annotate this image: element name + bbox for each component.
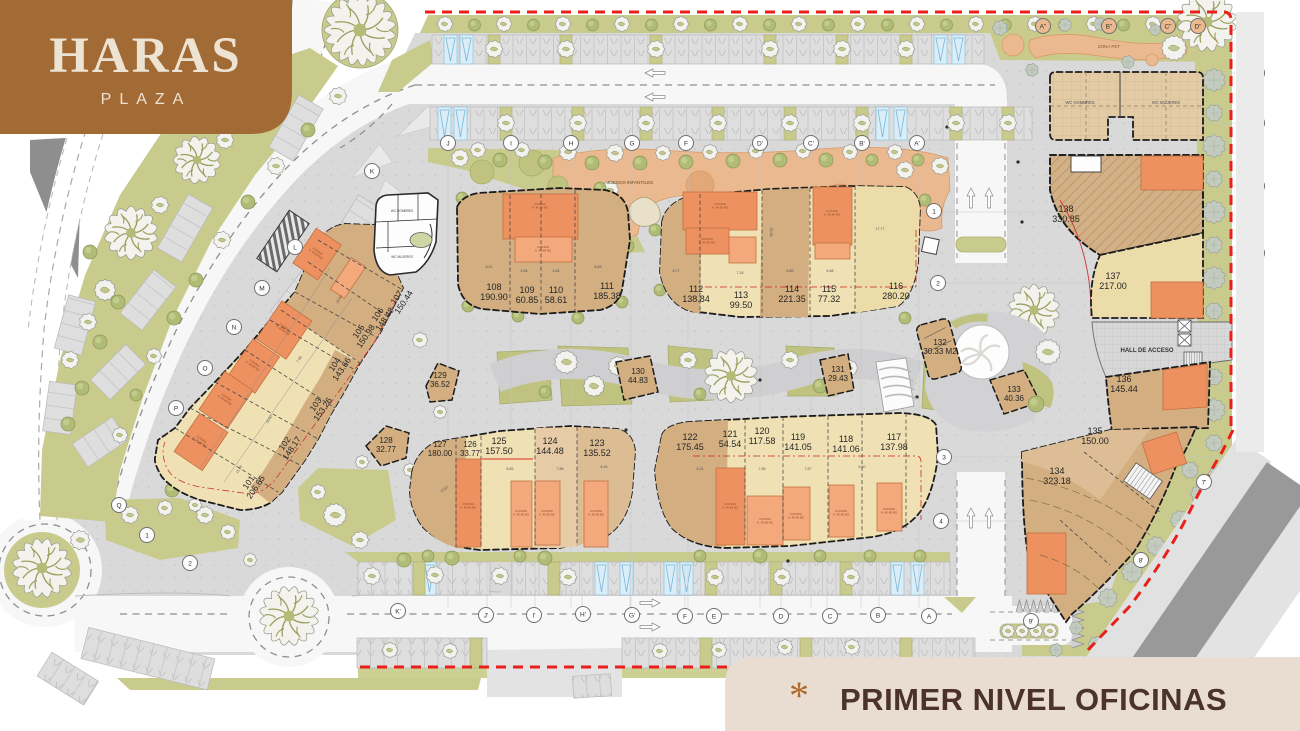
svg-text:7': 7' bbox=[1202, 479, 1207, 486]
svg-text:PLAZA: PLAZA bbox=[101, 91, 192, 108]
svg-text:B': B' bbox=[859, 140, 865, 147]
svg-text:HARAS: HARAS bbox=[49, 28, 243, 84]
svg-text:WC MUJERES: WC MUJERES bbox=[391, 255, 412, 259]
svg-text:WC HOMBRES: WC HOMBRES bbox=[1065, 100, 1095, 105]
svg-text:7.65: 7.65 bbox=[759, 467, 766, 471]
svg-text:2: 2 bbox=[936, 280, 940, 287]
svg-text:E: E bbox=[712, 613, 717, 620]
svg-text:8.86: 8.86 bbox=[787, 269, 794, 273]
svg-text:JUEGOS INFANTILES: JUEGOS INFANTILES bbox=[607, 180, 653, 185]
svg-text:ZONA PET: ZONA PET bbox=[1098, 44, 1121, 49]
svg-text:C: C bbox=[828, 613, 833, 620]
svg-text:C': C' bbox=[808, 140, 814, 147]
svg-text:K': K' bbox=[395, 608, 401, 615]
svg-text:B: B bbox=[876, 612, 880, 619]
svg-text:HALL DE ACCESO: HALL DE ACCESO bbox=[1120, 348, 1173, 354]
svg-text:PRIMER NIVEL OFICINAS: PRIMER NIVEL OFICINAS bbox=[840, 682, 1227, 717]
svg-text:17.77: 17.77 bbox=[876, 227, 885, 231]
svg-text:D": D" bbox=[1194, 23, 1202, 30]
svg-text:4: 4 bbox=[939, 518, 943, 525]
svg-text:2: 2 bbox=[188, 560, 192, 567]
svg-text:N: N bbox=[232, 324, 237, 331]
svg-text:7.87: 7.87 bbox=[805, 467, 812, 471]
svg-text:D: D bbox=[779, 613, 784, 620]
svg-text:25.68: 25.68 bbox=[769, 228, 773, 237]
svg-text:K: K bbox=[370, 168, 375, 175]
svg-text:8.65: 8.65 bbox=[507, 467, 514, 471]
svg-text:8.77: 8.77 bbox=[673, 269, 680, 273]
svg-text:A': A' bbox=[914, 140, 920, 147]
svg-text:8.46: 8.46 bbox=[601, 465, 608, 469]
svg-text:8.40: 8.40 bbox=[859, 465, 866, 469]
svg-text:G: G bbox=[629, 140, 634, 147]
svg-text:3: 3 bbox=[942, 454, 946, 461]
svg-text:*: * bbox=[789, 673, 809, 718]
svg-text:7.18: 7.18 bbox=[737, 271, 744, 275]
svg-text:8': 8' bbox=[1139, 557, 1144, 564]
svg-text:8.31: 8.31 bbox=[697, 467, 704, 471]
svg-text:J': J' bbox=[484, 612, 489, 619]
svg-text:4.88: 4.88 bbox=[521, 269, 528, 273]
svg-text:I': I' bbox=[532, 612, 535, 619]
svg-text:P: P bbox=[174, 405, 178, 412]
svg-text:B": B" bbox=[1106, 23, 1113, 30]
svg-text:1: 1 bbox=[932, 208, 936, 215]
svg-text:WC HOMBRES: WC HOMBRES bbox=[391, 209, 413, 213]
svg-text:WC MUJERES: WC MUJERES bbox=[1152, 100, 1180, 105]
svg-text:4.84: 4.84 bbox=[553, 269, 560, 273]
svg-text:8.46: 8.46 bbox=[595, 265, 602, 269]
svg-text:A: A bbox=[927, 613, 932, 620]
svg-text:M: M bbox=[259, 285, 264, 292]
svg-text:H: H bbox=[569, 140, 574, 147]
svg-text:9': 9' bbox=[1029, 618, 1034, 625]
svg-text:H': H' bbox=[580, 611, 586, 618]
svg-text:F: F bbox=[684, 140, 688, 147]
svg-text:J: J bbox=[446, 140, 449, 147]
svg-text:6.68: 6.68 bbox=[827, 269, 834, 273]
svg-text:8.01: 8.01 bbox=[486, 265, 493, 269]
svg-text:O: O bbox=[202, 365, 207, 372]
svg-text:A": A" bbox=[1040, 23, 1047, 30]
svg-text:7.86: 7.86 bbox=[557, 467, 564, 471]
svg-text:C": C" bbox=[1164, 23, 1172, 30]
svg-text:I: I bbox=[510, 140, 512, 147]
svg-text:L: L bbox=[293, 244, 297, 251]
svg-text:Q: Q bbox=[116, 502, 121, 509]
svg-text:F: F bbox=[683, 613, 687, 620]
svg-text:1: 1 bbox=[145, 532, 149, 539]
svg-text:G': G' bbox=[629, 612, 635, 619]
svg-text:D': D' bbox=[757, 140, 763, 147]
